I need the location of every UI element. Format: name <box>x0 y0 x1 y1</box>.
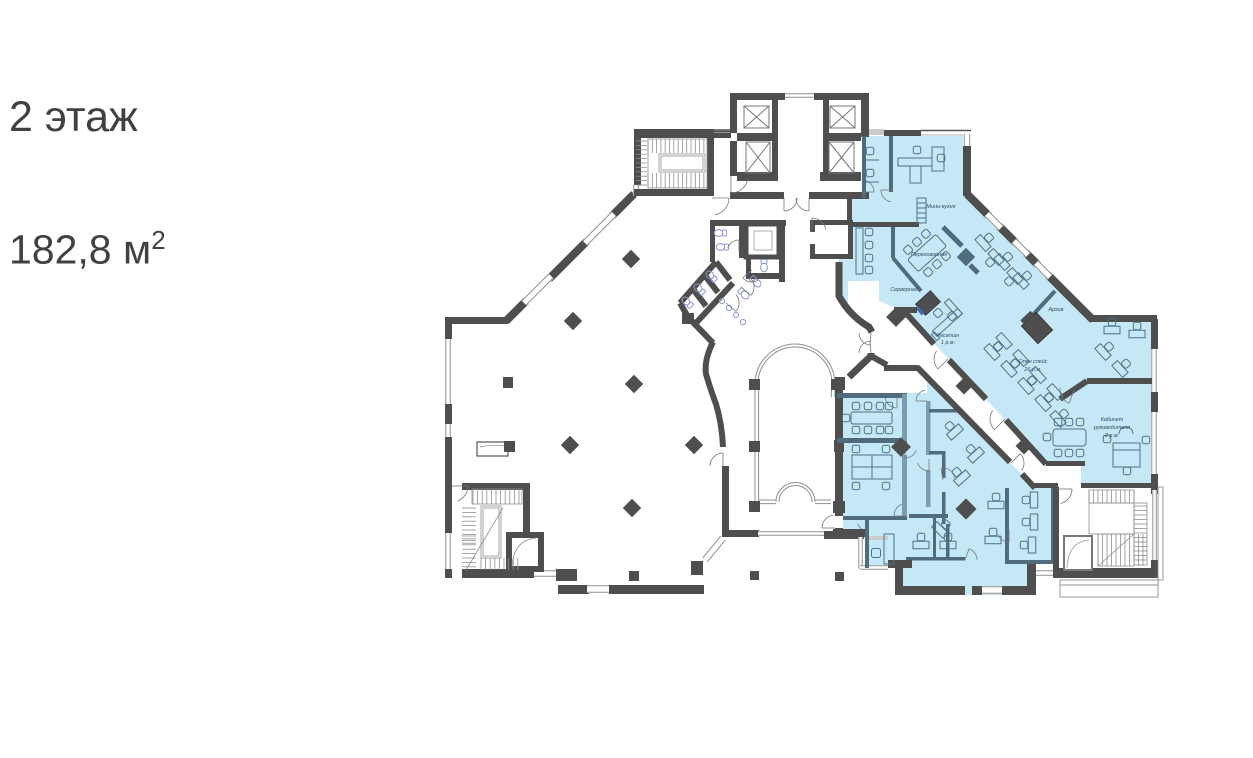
svg-text:2 р.м.: 2 р.м. <box>1104 433 1119 439</box>
svg-text:руководителя: руководителя <box>1093 425 1130 431</box>
svg-text:Мини-кухня: Мини-кухня <box>926 204 955 210</box>
svg-text:Переговорная: Переговорная <box>911 252 947 258</box>
svg-text:Ресепшн: Ресепшн <box>937 333 960 339</box>
svg-text:Опен спейс: Опен спейс <box>1019 358 1048 365</box>
svg-text:1 р.м.: 1 р.м. <box>941 340 955 346</box>
svg-text:Кабинет: Кабинет <box>1101 417 1124 423</box>
svg-text:Архив: Архив <box>1048 307 1064 313</box>
svg-text:Серверная: Серверная <box>890 287 918 293</box>
svg-text:26 р.м.: 26 р.м. <box>1023 367 1041 373</box>
